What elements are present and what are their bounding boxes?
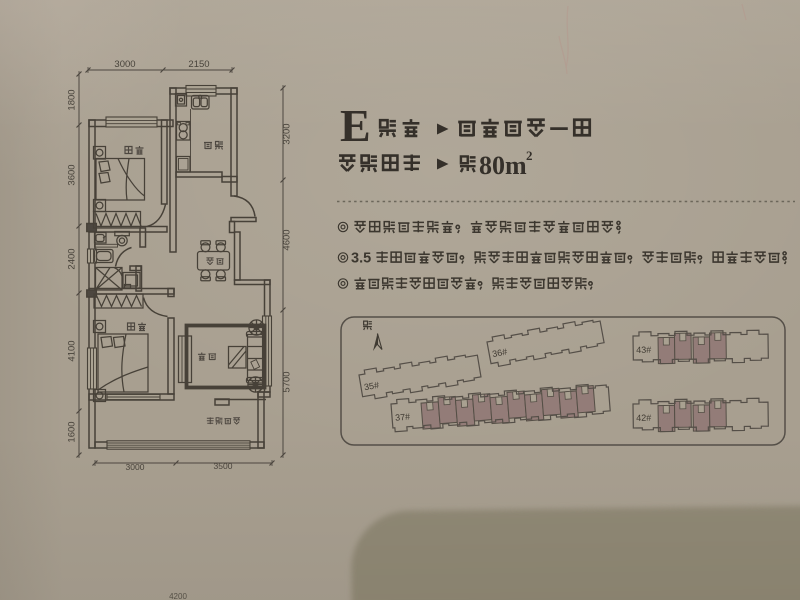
svg-text:3500: 3500 bbox=[214, 461, 233, 471]
svg-text:80m: 80m bbox=[479, 151, 527, 180]
svg-text:1600: 1600 bbox=[67, 421, 78, 442]
svg-text:2150: 2150 bbox=[188, 59, 209, 70]
svg-text:37#: 37# bbox=[395, 412, 411, 423]
svg-text:4600: 4600 bbox=[282, 229, 293, 250]
svg-text:35#: 35# bbox=[363, 380, 379, 392]
svg-text:2: 2 bbox=[526, 148, 533, 163]
svg-text:5700: 5700 bbox=[282, 371, 293, 392]
svg-text:3600: 3600 bbox=[67, 164, 78, 185]
svg-text:43#: 43# bbox=[636, 345, 651, 355]
svg-text:3200: 3200 bbox=[282, 123, 293, 144]
svg-text:4100: 4100 bbox=[67, 340, 78, 361]
svg-text:E: E bbox=[340, 100, 371, 151]
svg-text:3.5: 3.5 bbox=[351, 251, 371, 267]
svg-text:3000: 3000 bbox=[114, 59, 135, 70]
svg-text:1800: 1800 bbox=[67, 89, 78, 110]
svg-text:4200: 4200 bbox=[169, 592, 187, 600]
svg-text:42#: 42# bbox=[636, 413, 651, 423]
svg-text:36#: 36# bbox=[491, 347, 508, 360]
svg-text:2400: 2400 bbox=[67, 248, 78, 269]
svg-text:3000: 3000 bbox=[126, 462, 145, 472]
